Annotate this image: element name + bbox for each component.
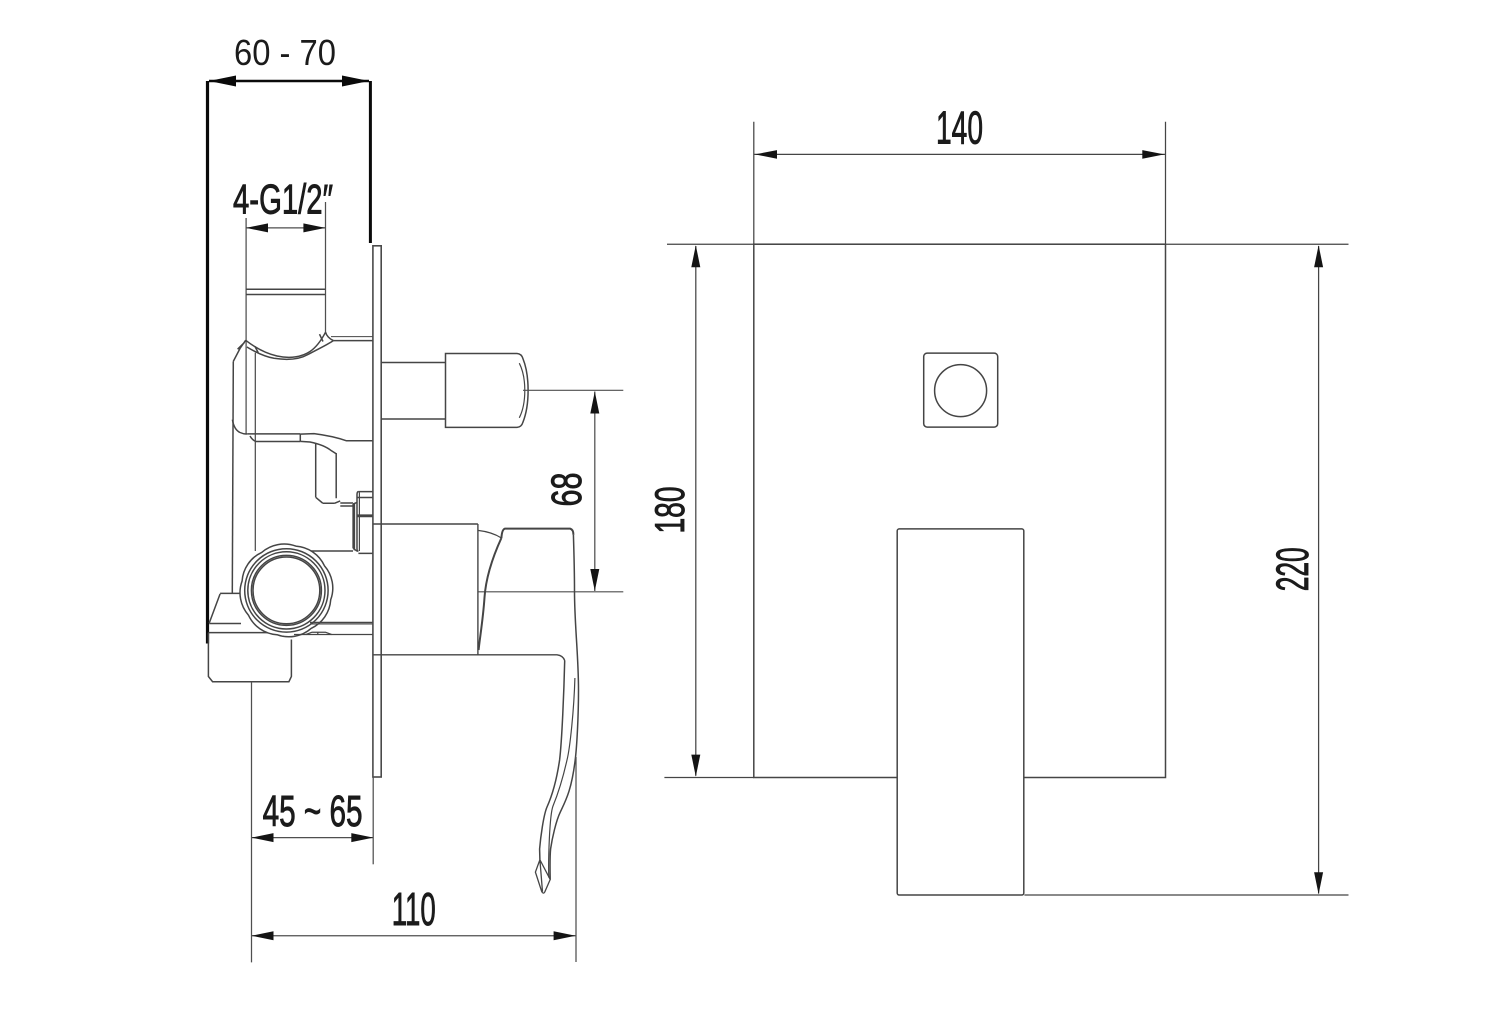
svg-text:45 ~ 65: 45 ~ 65 [263, 788, 363, 836]
svg-text:68: 68 [543, 473, 591, 507]
svg-text:110: 110 [392, 883, 436, 935]
svg-text:180: 180 [646, 487, 693, 534]
svg-text:220: 220 [1267, 547, 1318, 591]
svg-text:140: 140 [936, 102, 983, 154]
svg-text:4-G1/2″: 4-G1/2″ [233, 176, 333, 223]
svg-text:60 - 70: 60 - 70 [234, 32, 336, 73]
